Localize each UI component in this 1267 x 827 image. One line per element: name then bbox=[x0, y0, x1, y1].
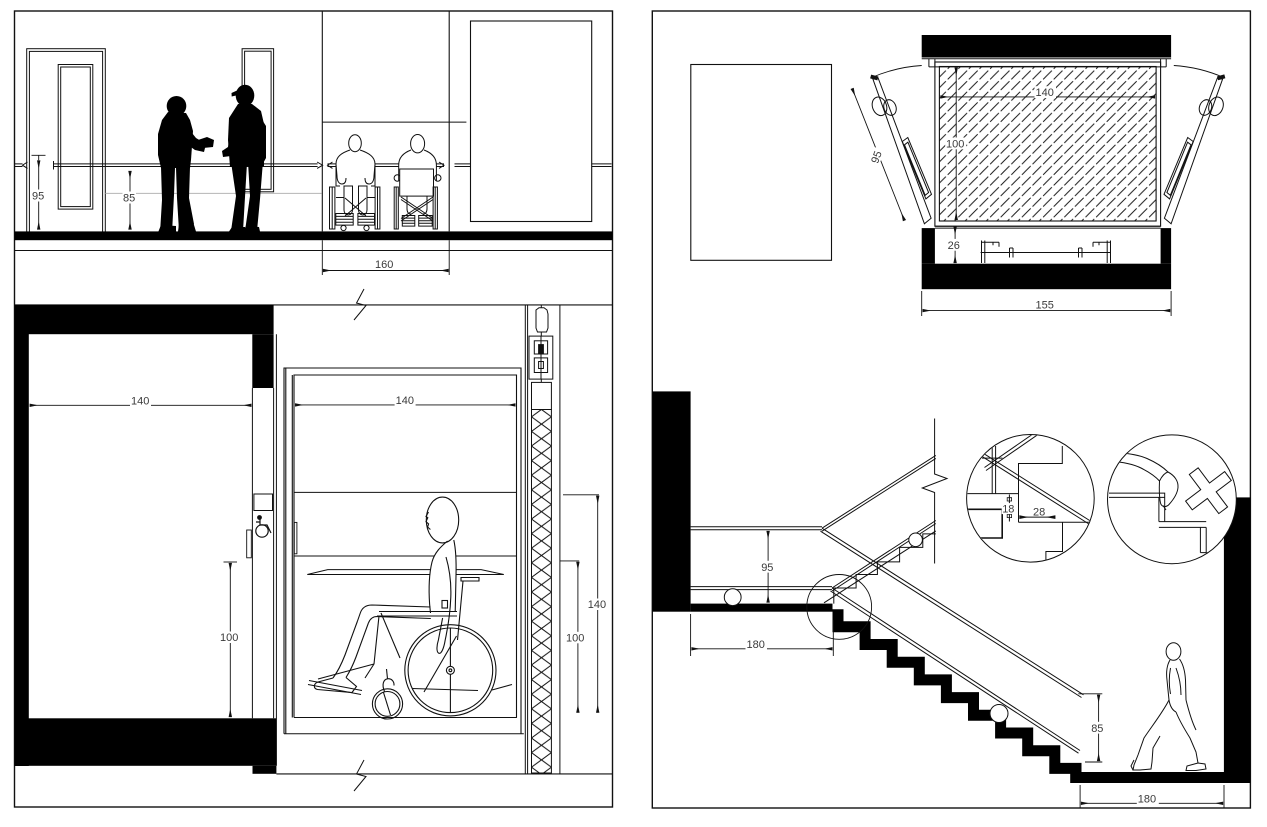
svg-text:85: 85 bbox=[1091, 723, 1103, 735]
svg-text:140: 140 bbox=[1036, 87, 1054, 99]
svg-text:85: 85 bbox=[123, 193, 135, 205]
svg-text:180: 180 bbox=[1138, 794, 1156, 806]
svg-text:160: 160 bbox=[375, 259, 393, 271]
svg-text:100: 100 bbox=[220, 632, 238, 644]
svg-text:28: 28 bbox=[1033, 507, 1045, 519]
svg-text:140: 140 bbox=[396, 395, 414, 407]
svg-text:95: 95 bbox=[32, 191, 44, 203]
svg-text:155: 155 bbox=[1036, 299, 1054, 311]
svg-text:100: 100 bbox=[946, 138, 964, 150]
svg-text:180: 180 bbox=[747, 639, 765, 651]
svg-text:140: 140 bbox=[588, 599, 606, 611]
svg-text:95: 95 bbox=[761, 562, 773, 574]
svg-text:140: 140 bbox=[131, 395, 149, 407]
svg-text:100: 100 bbox=[566, 633, 584, 645]
svg-text:26: 26 bbox=[948, 240, 960, 252]
svg-text:18: 18 bbox=[1002, 504, 1014, 516]
